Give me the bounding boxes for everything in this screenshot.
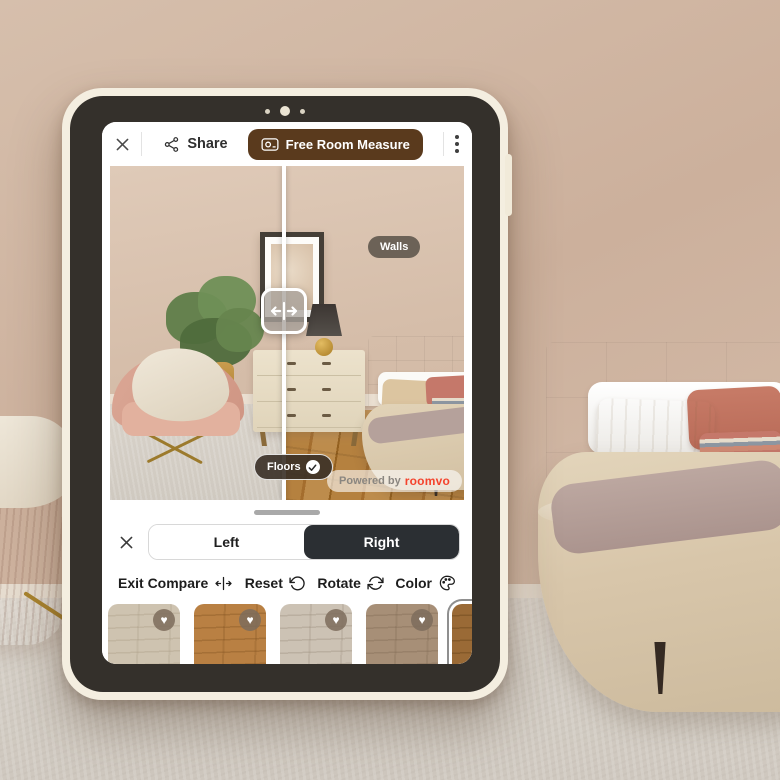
swatch-row: ♥♥♥♥: [102, 592, 472, 664]
tablet-bezel: Share Free Room Measure: [70, 96, 500, 692]
rotate-button[interactable]: Rotate: [317, 575, 384, 592]
rotate-ccw-icon: [289, 575, 306, 592]
tablet-side-button: [505, 154, 512, 216]
exit-compare-button[interactable]: Exit Compare: [118, 575, 233, 591]
watermark-prefix: Powered by: [339, 475, 401, 487]
app-topbar: Share Free Room Measure: [102, 122, 472, 166]
left-right-segmented-control: Left Right: [148, 524, 460, 560]
share-label: Share: [187, 136, 227, 152]
color-button[interactable]: Color: [395, 574, 456, 592]
favorite-heart-icon[interactable]: ♥: [153, 609, 175, 631]
floor-swatch-taupe-wood[interactable]: ♥: [366, 604, 438, 664]
sheet-drag-handle[interactable]: [254, 510, 320, 515]
bottom-sheet: Left Right Exit Compare Reset: [102, 504, 472, 664]
check-circle-icon: [306, 460, 320, 474]
overflow-menu-button[interactable]: [453, 135, 460, 153]
split-arrows-icon: [269, 300, 299, 322]
marketing-scene: Share Free Room Measure: [0, 0, 780, 780]
camera-lens: [280, 106, 290, 116]
exit-floor-edit-button[interactable]: [114, 530, 138, 554]
floor-swatch-warm-oak-wood[interactable]: ♥: [194, 604, 266, 664]
floor-swatch-light-cream-wood[interactable]: ♥: [108, 604, 180, 664]
tablet-camera-cluster: [70, 103, 500, 119]
tape-measure-icon: [261, 137, 279, 152]
walls-tag-label: Walls: [380, 241, 408, 253]
palette-icon: [438, 574, 456, 592]
share-button[interactable]: Share: [163, 136, 227, 153]
favorite-heart-icon[interactable]: ♥: [325, 609, 347, 631]
share-icon: [163, 136, 180, 153]
compare-arrows-icon: [214, 576, 233, 591]
reset-label: Reset: [245, 575, 283, 591]
walls-tag[interactable]: Walls: [368, 236, 420, 258]
floor-swatch-light-grey-wood[interactable]: ♥: [280, 604, 352, 664]
camera-dot: [265, 109, 270, 114]
close-button[interactable]: [114, 131, 131, 157]
exit-compare-label: Exit Compare: [118, 575, 208, 591]
roomvo-logo: roomvo: [405, 474, 450, 488]
free-room-measure-label: Free Room Measure: [286, 137, 410, 152]
compare-slider-handle[interactable]: [261, 288, 307, 334]
floors-tag[interactable]: Floors: [254, 454, 333, 480]
floor-swatch-rustic-brown-wood[interactable]: [452, 604, 472, 664]
free-room-measure-button[interactable]: Free Room Measure: [248, 129, 423, 160]
wood-grain-texture: [452, 604, 472, 664]
floors-tag-label: Floors: [267, 461, 301, 473]
camera-dot: [300, 109, 305, 114]
side-toggle-row: Left Right: [102, 516, 472, 560]
color-label: Color: [395, 575, 432, 591]
room-visualizer-photo: Walls Floors Powered by roomvo: [110, 166, 464, 500]
reset-button[interactable]: Reset: [245, 575, 306, 592]
floor-toolbar: Exit Compare Reset Rotate Color: [102, 560, 472, 592]
photo-dresser: [253, 350, 365, 432]
favorite-heart-icon[interactable]: ♥: [411, 609, 433, 631]
tablet-device: Share Free Room Measure: [62, 88, 508, 700]
app-screen: Share Free Room Measure: [102, 122, 472, 664]
rotate-label: Rotate: [317, 575, 361, 591]
photo-armchair: [112, 354, 250, 454]
close-icon: [114, 136, 131, 153]
segment-left[interactable]: Left: [149, 525, 304, 559]
powered-by-roomvo-watermark: Powered by roomvo: [327, 470, 462, 492]
rotate-cw-icon: [367, 575, 384, 592]
photo-lamp-base: [315, 338, 333, 356]
close-icon: [118, 534, 135, 551]
favorite-heart-icon[interactable]: ♥: [239, 609, 261, 631]
segment-right-selected[interactable]: Right: [304, 525, 459, 559]
